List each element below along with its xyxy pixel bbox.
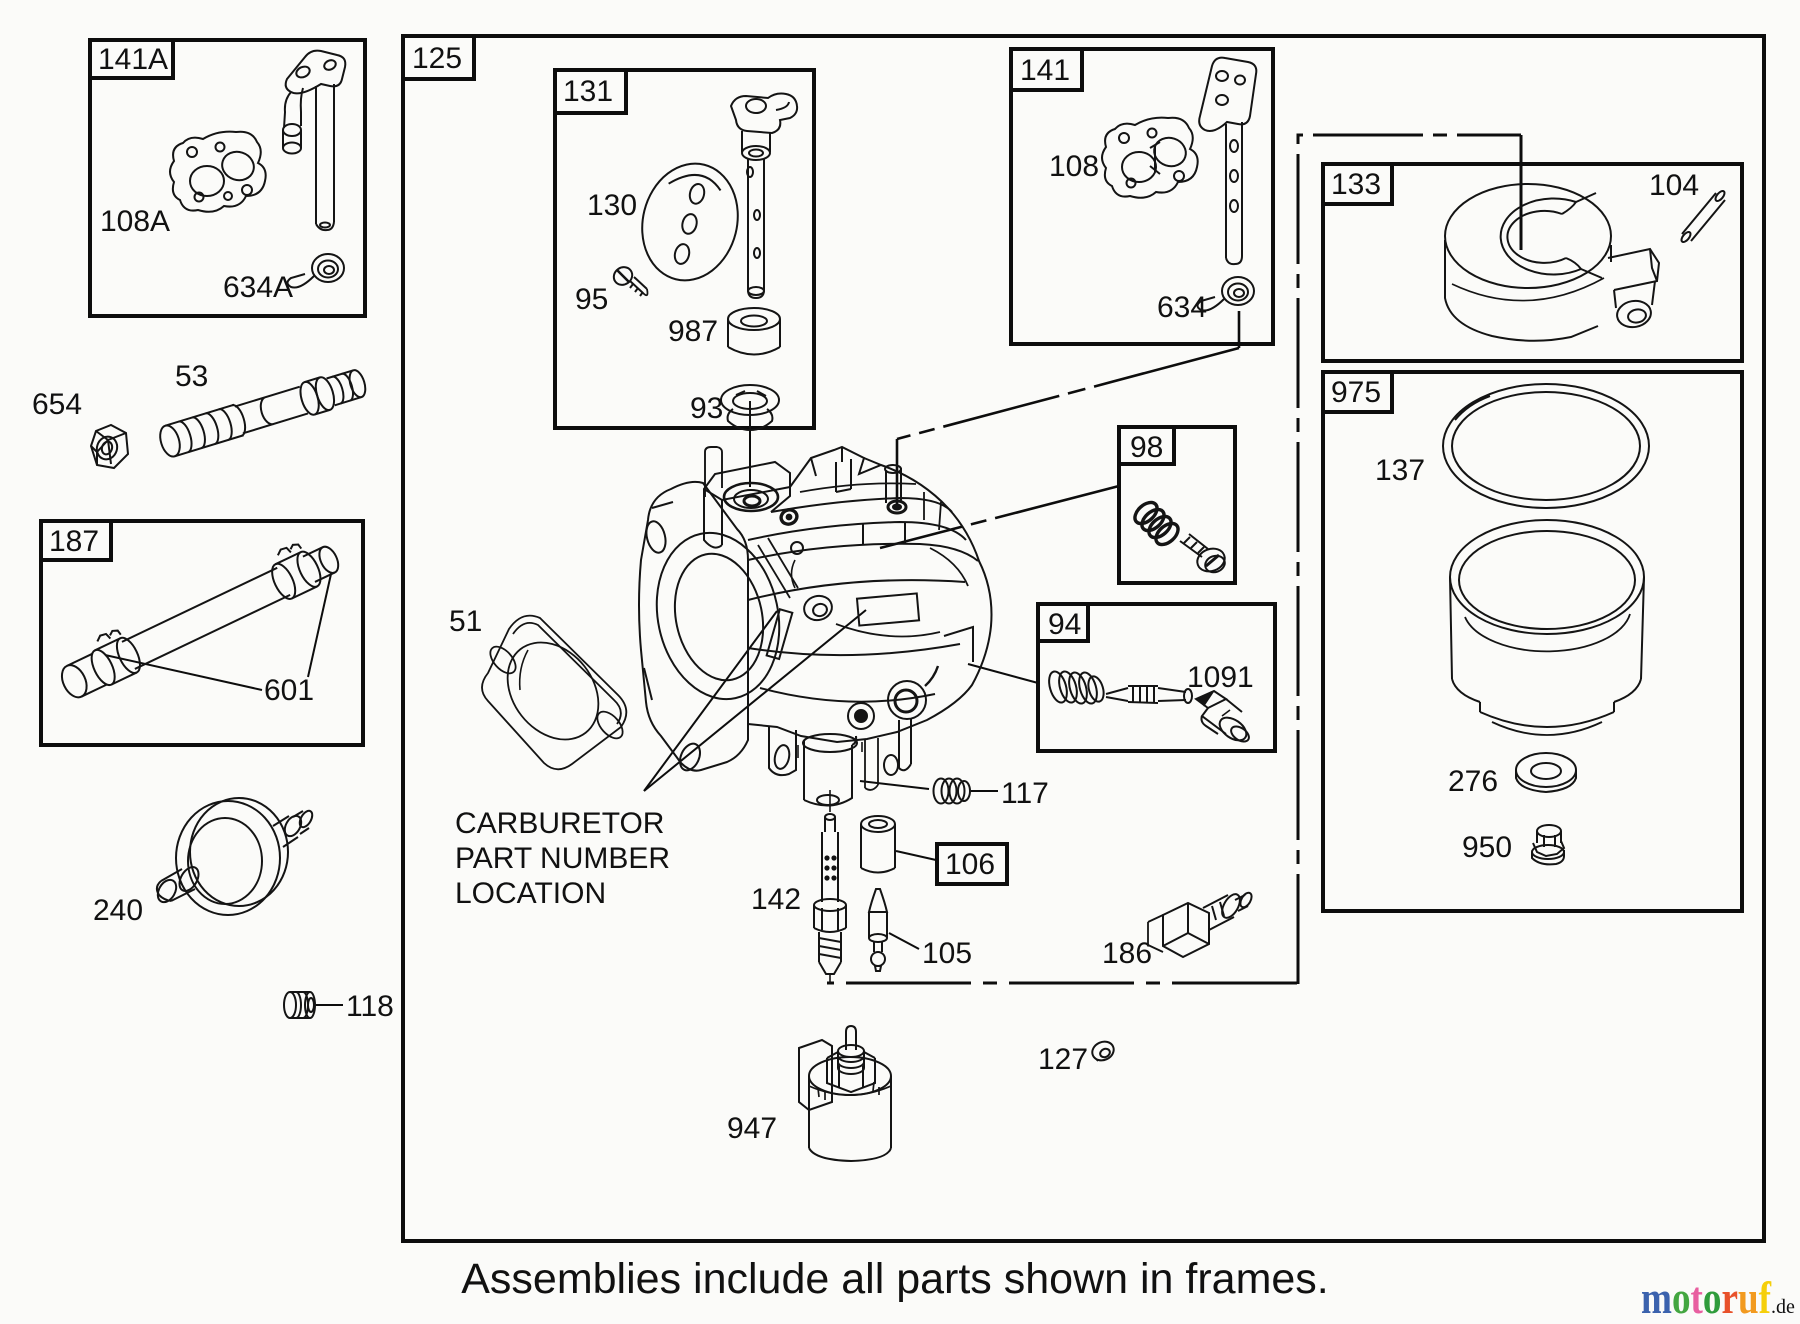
svg-text:634A: 634A (223, 271, 293, 304)
svg-text:186: 186 (1102, 937, 1152, 970)
svg-text:975: 975 (1331, 376, 1381, 409)
svg-text:105: 105 (922, 937, 972, 970)
svg-text:CARBURETOR: CARBURETOR (455, 807, 664, 840)
svg-text:95: 95 (575, 283, 608, 316)
svg-text:141: 141 (1020, 54, 1070, 87)
svg-text:987: 987 (668, 315, 718, 348)
svg-text:654: 654 (32, 388, 82, 421)
svg-text:94: 94 (1048, 608, 1081, 641)
svg-text:LOCATION: LOCATION (455, 877, 606, 910)
svg-text:276: 276 (1448, 765, 1498, 798)
svg-text:141A: 141A (98, 43, 168, 76)
svg-text:117: 117 (1001, 777, 1049, 810)
svg-text:PART NUMBER: PART NUMBER (455, 842, 670, 875)
svg-text:133: 133 (1331, 168, 1381, 201)
svg-text:.de: .de (1771, 1296, 1795, 1318)
svg-text:108A: 108A (100, 205, 170, 238)
svg-text:Assemblies include all parts s: Assemblies include all parts shown in fr… (461, 1255, 1329, 1303)
svg-text:51: 51 (449, 605, 482, 638)
svg-text:motoruf: motoruf (1641, 1272, 1772, 1323)
svg-text:130: 130 (587, 189, 637, 222)
svg-text:187: 187 (49, 525, 99, 558)
svg-text:142: 142 (751, 883, 801, 916)
svg-text:1091: 1091 (1187, 661, 1254, 694)
svg-text:240: 240 (93, 894, 143, 927)
svg-text:93: 93 (690, 392, 723, 425)
svg-text:98: 98 (1130, 431, 1163, 464)
svg-text:131: 131 (563, 75, 613, 108)
svg-text:108: 108 (1049, 150, 1099, 183)
svg-text:137: 137 (1375, 454, 1425, 487)
svg-text:127: 127 (1038, 1043, 1088, 1076)
svg-text:106: 106 (945, 848, 995, 881)
svg-text:947: 947 (727, 1112, 777, 1145)
svg-text:53: 53 (175, 360, 208, 393)
svg-text:118: 118 (346, 990, 394, 1023)
svg-text:104: 104 (1649, 169, 1699, 202)
svg-text:950: 950 (1462, 831, 1512, 864)
svg-text:601: 601 (264, 674, 314, 707)
svg-text:634: 634 (1157, 291, 1207, 324)
svg-text:125: 125 (412, 42, 462, 75)
